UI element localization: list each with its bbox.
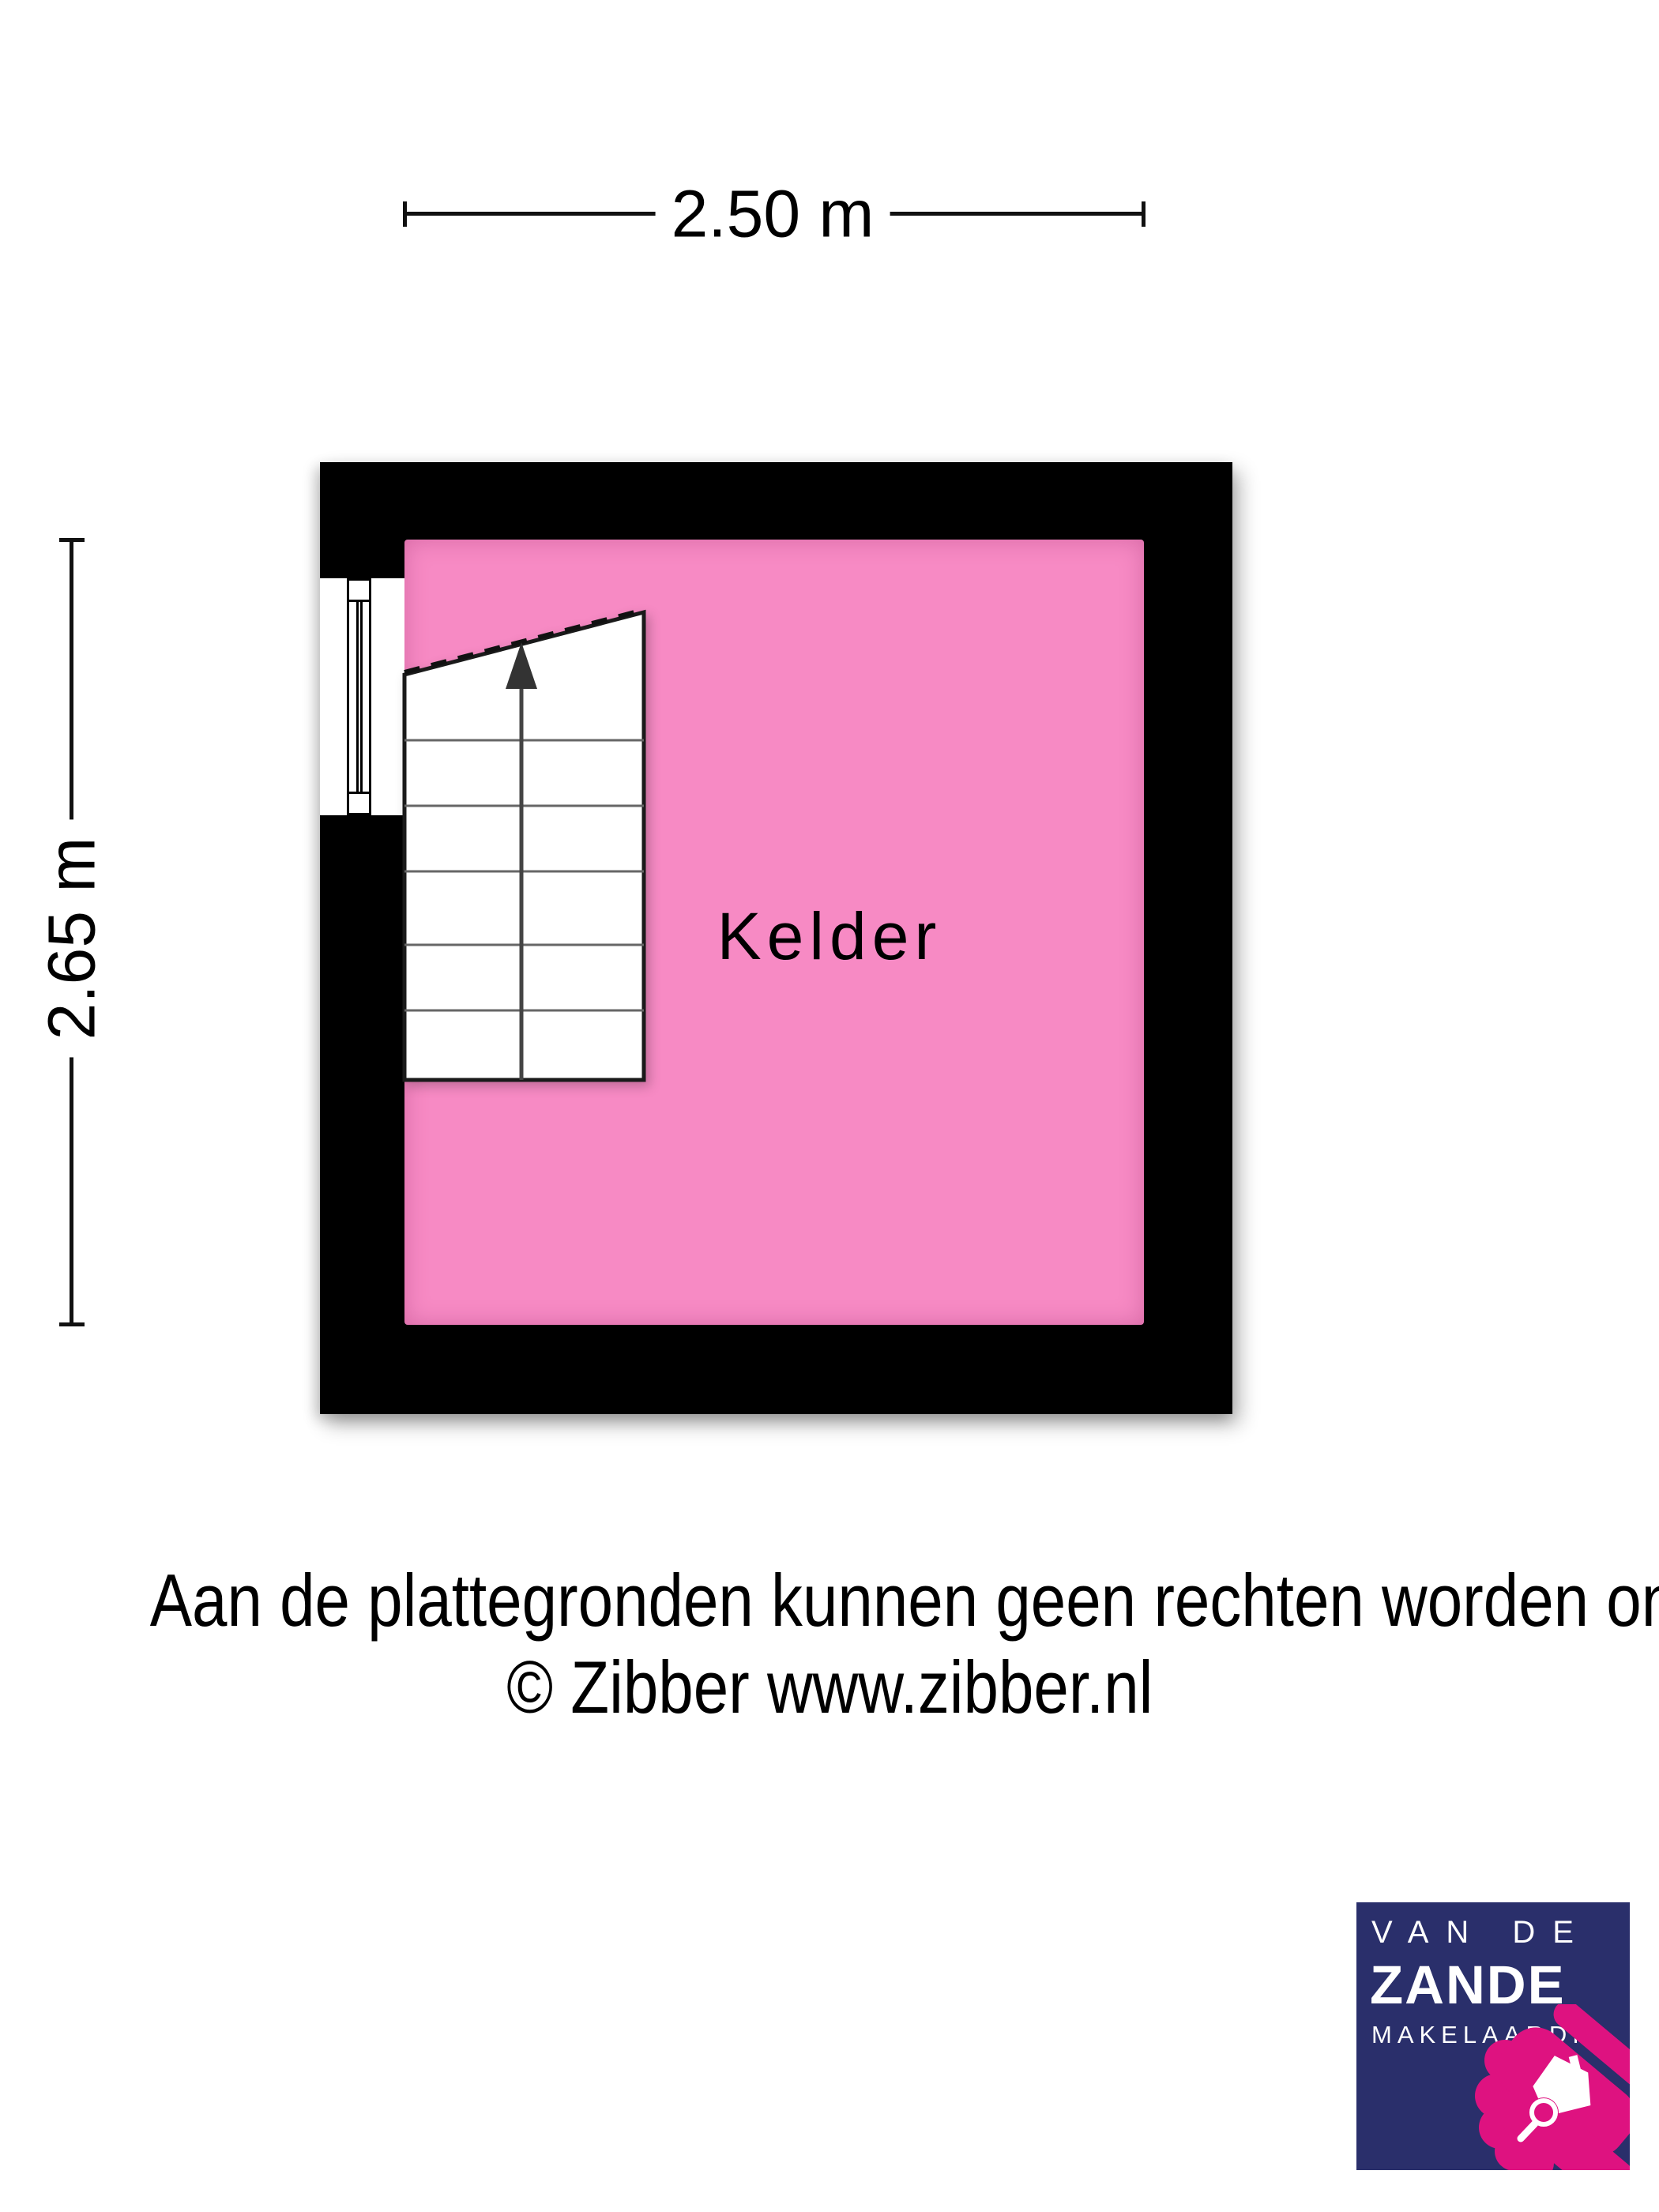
window-icon — [320, 578, 404, 815]
logo-house-magnifier-icon — [1472, 2004, 1630, 2170]
dimension-height-tick-top — [59, 538, 85, 542]
dimension-height-label: 2.65 m — [34, 820, 111, 1058]
disclaimer-line-1: Aan de plattegronden kunnen geen rechten… — [0, 1557, 1659, 1644]
room-label: Kelder — [648, 901, 1011, 972]
agency-logo: VAN DE ZANDE MAKELAARDIJ — [1356, 1902, 1630, 2170]
disclaimer-line-2: © Zibber www.zibber.nl — [0, 1644, 1659, 1731]
floorplan-page: 2.50 m 2.65 m — [0, 0, 1659, 2212]
window-frame-cap-bottom — [349, 792, 369, 794]
dimension-width-tick-right — [1142, 201, 1145, 227]
dimension-height-tick-bottom — [59, 1322, 85, 1326]
logo-text-van-de: VAN DE — [1371, 1915, 1630, 1951]
window-glass-line — [356, 602, 359, 792]
dimension-width-label: 2.50 m — [656, 176, 890, 253]
staircase — [399, 604, 652, 1086]
dimension-width-tick-left — [403, 201, 407, 227]
window-frame — [347, 578, 371, 815]
window-glass-line — [360, 602, 363, 792]
window-frame-cap-top — [349, 600, 369, 602]
disclaimer: Aan de plattegronden kunnen geen rechten… — [0, 1557, 1659, 1731]
floor-plan: Kelder — [320, 462, 1232, 1414]
